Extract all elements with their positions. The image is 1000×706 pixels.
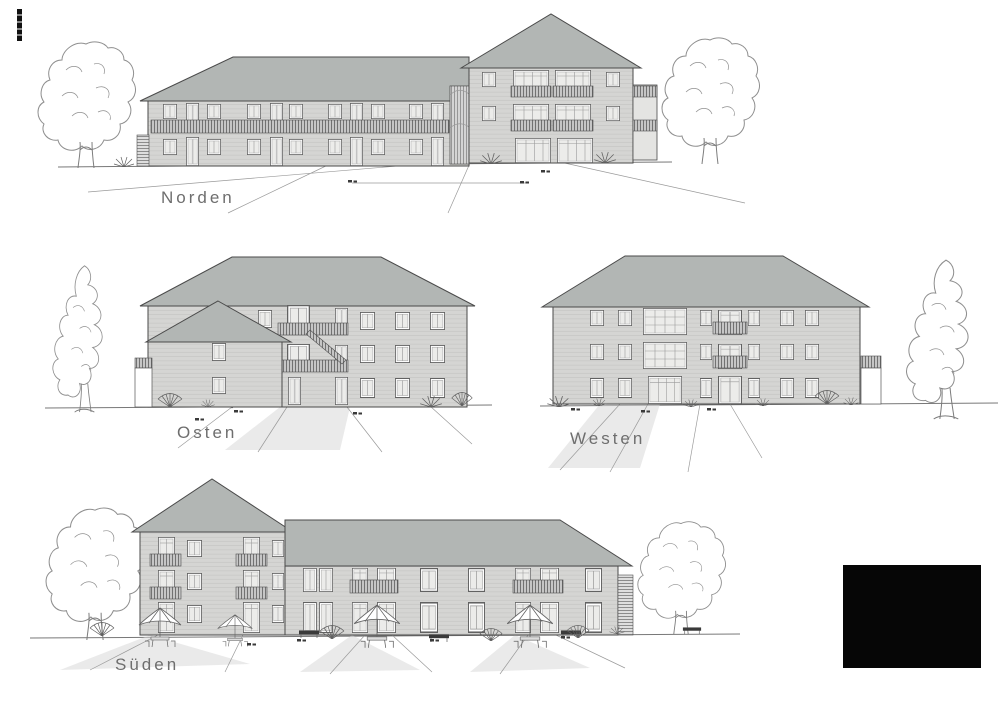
window [606,106,619,120]
window [430,312,444,329]
window [207,104,220,118]
elevation-osten: Osten [45,257,492,452]
window [482,106,495,120]
poplar-tree-icon [907,260,969,419]
door [270,137,282,165]
window [748,310,759,325]
building-tower-north [461,14,657,163]
window [700,310,711,325]
window [360,312,374,329]
door [288,377,300,404]
window [289,104,302,118]
corner-stamp [17,9,22,41]
path-mark [247,643,256,646]
window [207,139,220,154]
window [430,379,444,398]
ladder-icon [137,135,149,166]
window [780,344,793,359]
window [360,379,374,398]
balcony-railing [511,120,551,131]
window [700,344,711,359]
building-wing-north [137,57,469,166]
elevation-label-westen: Westen [570,429,645,448]
elevation-drawing: Norden [0,0,1000,706]
balcony-railing [511,86,551,97]
porch-roof [135,358,152,368]
window [163,139,176,154]
window [590,310,603,325]
window [395,345,409,362]
building-west [542,256,881,404]
window [805,310,818,325]
window [371,139,384,154]
shrub-icon [114,157,134,167]
window [585,603,601,632]
window [371,104,384,118]
path-mark [561,636,570,639]
window [618,344,631,359]
window [328,104,341,118]
entrance-door [648,376,681,403]
window [395,312,409,329]
stairwell-window [643,308,686,334]
window [618,310,631,325]
deciduous-tree-icon [46,508,145,640]
window [618,379,631,398]
window [606,72,619,86]
deciduous-tree-icon [38,42,135,168]
window [409,104,422,118]
window [748,344,759,359]
deciduous-tree-icon [662,38,759,164]
window [748,379,759,398]
shrub-icon [90,622,114,636]
window [590,344,603,359]
elevation-label-norden: Norden [161,188,235,207]
door [186,137,198,165]
window [780,310,793,325]
window [272,605,283,622]
elevation-label-osten: Osten [177,423,237,442]
path-mark [571,408,580,411]
deciduous-tree-icon [638,522,726,634]
path-mark [353,412,362,415]
tower-roof [461,14,641,68]
stairwell-window [643,342,686,368]
elevation-sueden: Süden [30,479,740,674]
balcony-railing [350,580,398,593]
terrace-door [719,376,742,403]
wing-wall [285,566,618,635]
main-roof [140,257,475,306]
window [468,603,484,632]
window [430,345,444,362]
window [289,139,302,154]
tower-roof [132,479,293,532]
terrace-door [557,138,592,162]
annex-roof [861,356,881,368]
poplar-tree-icon [53,266,102,412]
elevation-westen: Westen [540,256,998,472]
wing-roof [285,520,632,566]
window [328,139,341,154]
path-mark [707,408,716,411]
drawing-sheet: Norden [0,0,1000,706]
window [585,569,601,592]
balcony-railing [151,120,449,133]
balcony-railing [278,360,348,372]
door [350,137,362,165]
elevation-label-sueden: Süden [115,655,179,674]
elevation-norden: Norden [38,14,759,213]
door [431,137,443,165]
annex [861,368,881,404]
window [247,104,260,118]
window [187,540,201,556]
window [395,379,409,398]
window [590,379,603,398]
window [187,573,201,589]
building-wing-south [285,520,633,635]
window [212,377,225,393]
path-mark [430,639,439,642]
path-mark [541,170,550,173]
balcony-railing [513,580,563,593]
window [700,379,711,398]
walkway [470,635,590,672]
balcony-railing [236,554,267,566]
balcony-railing [633,120,657,131]
window [360,345,374,362]
balcony-railing [553,86,593,97]
balcony-railing [633,86,657,97]
main-roof [542,256,869,307]
window [421,603,438,632]
window [468,569,484,592]
wing-roof [140,57,469,101]
bench-icon [683,627,701,634]
terrace-door [515,138,550,162]
window [780,379,793,398]
balcony-railing [150,587,181,599]
balcony-railing [713,322,747,334]
external-stair-icon [450,86,469,164]
window [805,344,818,359]
window [409,139,422,154]
balcony-railing [236,587,267,599]
window [272,540,283,556]
balcony-railing [713,356,747,368]
window [212,343,225,360]
path-mark [195,418,204,421]
window [421,569,438,592]
redacted-block [843,565,981,668]
walkway [225,407,350,450]
porch [135,368,152,407]
window [187,605,201,622]
window [272,573,283,589]
window [482,72,495,86]
door [335,377,347,404]
balcony-railing [150,554,181,566]
ladder-icon [618,575,633,635]
path-mark [234,410,243,413]
path-mark [297,639,306,642]
window [247,139,260,154]
balcony-railing [553,120,593,131]
path-mark [348,180,357,183]
window [163,104,176,118]
